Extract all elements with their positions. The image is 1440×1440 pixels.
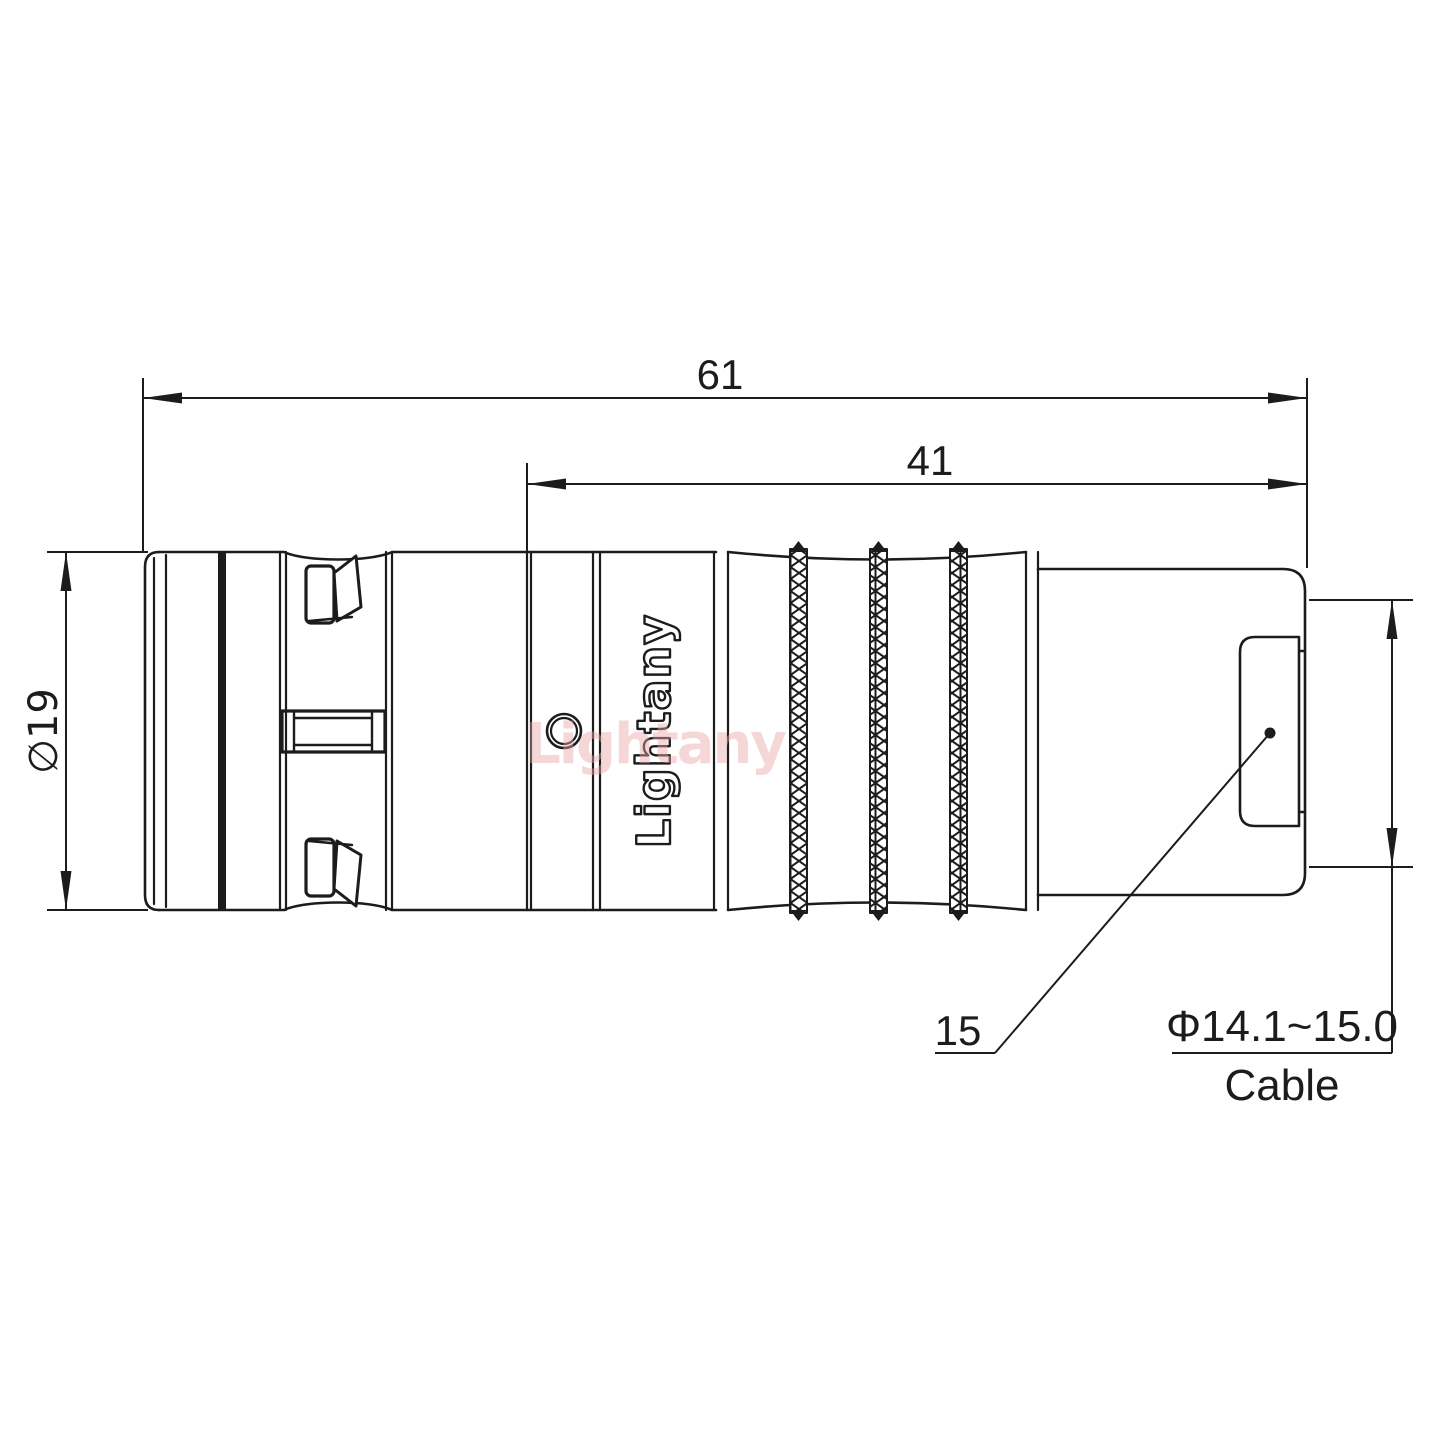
- knurl-band-fill: [870, 549, 887, 913]
- knurl-tip-top: [870, 541, 887, 552]
- knurl-band-fill: [790, 549, 807, 913]
- cable-word-label: Cable: [1225, 1061, 1340, 1110]
- sleeve-cap-inner-lines: [154, 555, 166, 907]
- knurl-band-fill: [950, 549, 967, 913]
- knurl-tip-bottom: [870, 910, 887, 921]
- latch-front-plate: [334, 556, 361, 621]
- arrow-down-icon: [1387, 828, 1398, 867]
- connector-technical-drawing: 61 41 ∅19: [0, 0, 1440, 1440]
- sleeve-black-ring: [218, 552, 226, 910]
- watermark-text: Lightany: [525, 712, 786, 777]
- knurl-band-1: [790, 541, 807, 921]
- nut-size-label: 15: [935, 1007, 982, 1054]
- arrow-right-icon: [1268, 479, 1307, 490]
- knurl-tip-bottom: [790, 910, 807, 921]
- arrow-down-icon: [61, 871, 72, 910]
- body-diameter-label: ∅19: [21, 688, 67, 774]
- arrow-left-icon: [143, 393, 182, 404]
- latch-back-plate: [306, 566, 334, 623]
- barrel-length-label: 41: [907, 437, 954, 484]
- knurl-tip-top: [950, 541, 967, 552]
- arrow-right-icon: [1268, 393, 1307, 404]
- knurl-tip-top: [790, 541, 807, 552]
- dimension-barrel-length: 41: [527, 437, 1307, 552]
- latch-bottom: [306, 839, 361, 906]
- latch-back-plate: [306, 839, 334, 896]
- knurl-tip-bottom: [950, 910, 967, 921]
- sleeve-left-cap: [145, 552, 159, 910]
- arrow-up-icon: [61, 552, 72, 591]
- latch-top: [306, 556, 361, 623]
- knurl-band-3: [950, 541, 967, 921]
- dimension-total-length: 61: [143, 351, 1307, 568]
- arrow-left-icon: [527, 479, 566, 490]
- cable-range-label: Φ14.1~15.0: [1166, 1002, 1398, 1051]
- dimension-body-diameter: ∅19: [21, 552, 148, 910]
- bayonet-window: [282, 711, 385, 752]
- arrow-up-icon: [1387, 600, 1398, 639]
- latch-front-plate: [334, 841, 361, 906]
- dimension-cable-diameter: Φ14.1~15.0 Cable: [1166, 600, 1413, 1110]
- drawing-canvas: 61 41 ∅19: [0, 0, 1440, 1440]
- knurl-band-2: [870, 541, 887, 921]
- window-inner-lines: [294, 711, 372, 752]
- total-length-label: 61: [697, 351, 744, 398]
